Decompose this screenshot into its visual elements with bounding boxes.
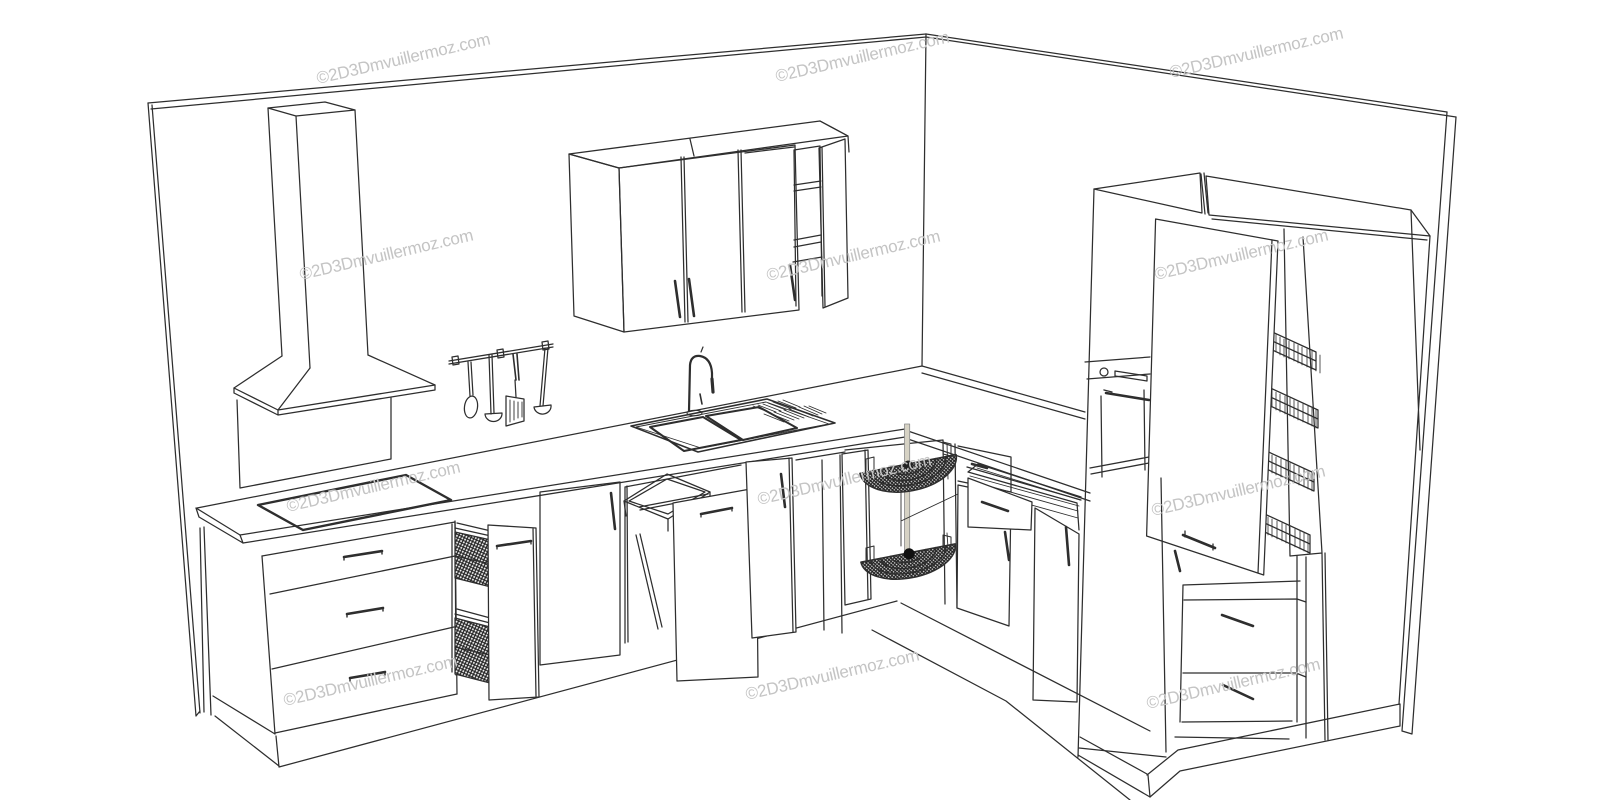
svg-text:©2D3Dmvuillermoz.com: ©2D3Dmvuillermoz.com bbox=[1145, 654, 1322, 712]
svg-text:©2D3Dmvuillermoz.com: ©2D3Dmvuillermoz.com bbox=[1168, 23, 1345, 81]
svg-text:©2D3Dmvuillermoz.com: ©2D3Dmvuillermoz.com bbox=[765, 226, 942, 284]
svg-text:©2D3Dmvuillermoz.com: ©2D3Dmvuillermoz.com bbox=[285, 457, 462, 515]
svg-text:©2D3Dmvuillermoz.com: ©2D3Dmvuillermoz.com bbox=[315, 29, 492, 87]
svg-text:©2D3Dmvuillermoz.com: ©2D3Dmvuillermoz.com bbox=[774, 27, 951, 85]
svg-text:©2D3Dmvuillermoz.com: ©2D3Dmvuillermoz.com bbox=[744, 645, 921, 703]
svg-text:©2D3Dmvuillermoz.com: ©2D3Dmvuillermoz.com bbox=[298, 225, 475, 283]
